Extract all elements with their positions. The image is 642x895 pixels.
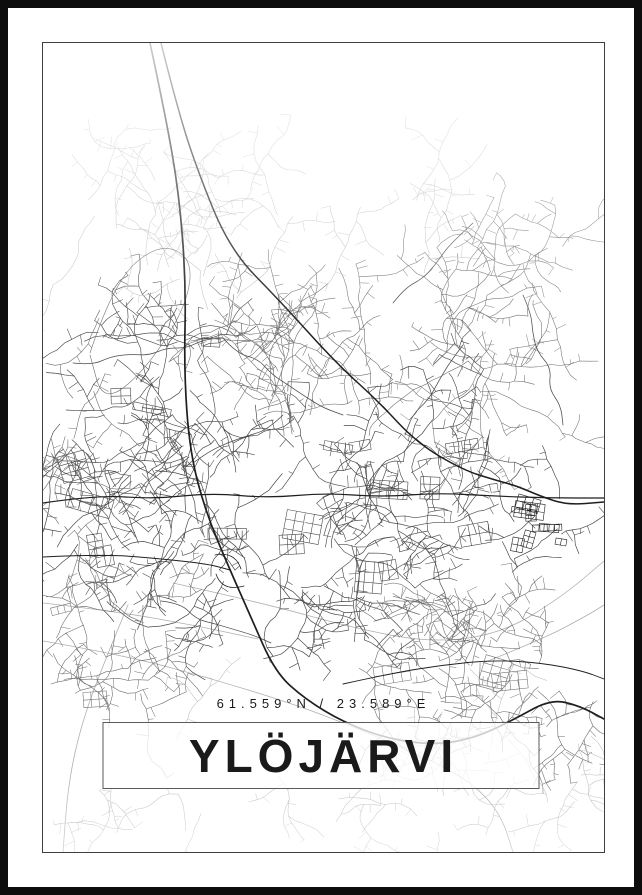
city-title: YLÖJÄRVI xyxy=(184,733,458,779)
poster-frame: 61.559°N / 23.589°E YLÖJÄRVI xyxy=(0,0,642,895)
title-box: YLÖJÄRVI xyxy=(103,722,540,789)
coordinates-label: 61.559°N / 23.589°E xyxy=(8,696,634,711)
